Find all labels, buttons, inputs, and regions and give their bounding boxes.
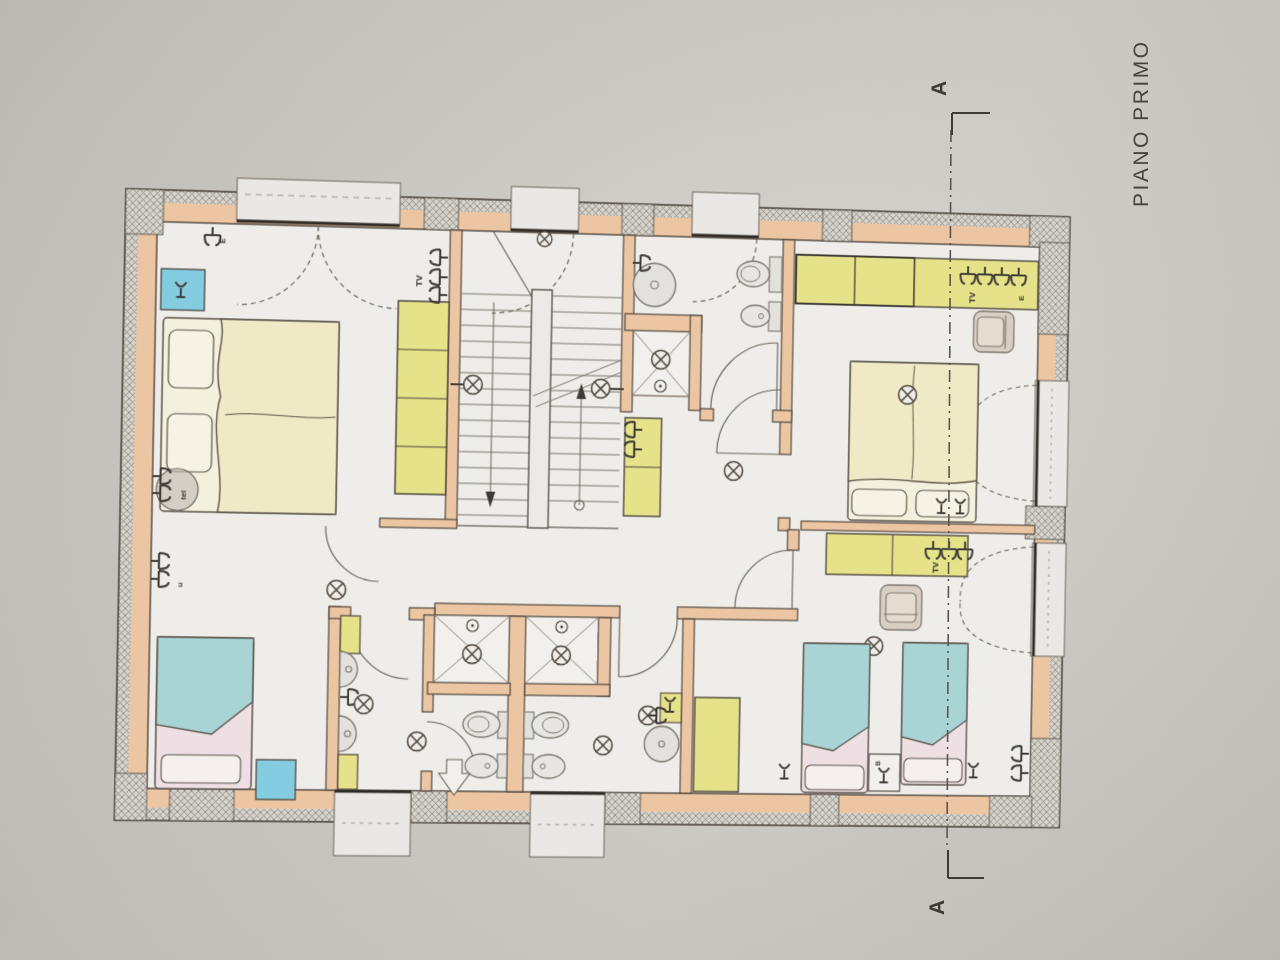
pillow bbox=[168, 330, 214, 389]
single-bed bbox=[155, 637, 254, 790]
floor-plan: TV E tel u bbox=[93, 148, 1089, 893]
wc bbox=[463, 711, 508, 738]
socket-label-tv: TV bbox=[968, 292, 978, 303]
socket-label-u: u bbox=[175, 582, 184, 587]
socket-label-e: E bbox=[218, 237, 227, 243]
socket-label-tv: TV bbox=[414, 275, 424, 287]
nightstand bbox=[161, 269, 205, 311]
pillow bbox=[167, 413, 213, 472]
socket-round bbox=[354, 695, 373, 714]
single-bed bbox=[801, 643, 870, 793]
window bbox=[333, 790, 411, 856]
bidet bbox=[523, 754, 565, 778]
wardrobe bbox=[826, 533, 968, 576]
nightstand: B bbox=[868, 754, 900, 791]
double-bed bbox=[848, 361, 979, 522]
cabinet bbox=[693, 697, 740, 791]
corridor-light bbox=[724, 461, 742, 480]
shower bbox=[433, 615, 509, 683]
single-bed bbox=[901, 643, 968, 786]
pillow bbox=[161, 755, 241, 784]
hall-cabinet bbox=[623, 418, 661, 517]
bath-cabinet bbox=[338, 754, 358, 789]
pillow bbox=[903, 758, 962, 782]
pillow bbox=[852, 489, 907, 516]
bidet bbox=[465, 754, 507, 778]
shower bbox=[632, 331, 690, 397]
socket-label-tv: TV bbox=[931, 562, 941, 573]
floor-plan-drawing: TV E tel u bbox=[93, 148, 1089, 893]
round-washbasin bbox=[644, 726, 679, 762]
stair-stringer bbox=[528, 290, 553, 529]
socket-label-b: B bbox=[875, 761, 882, 766]
armchair bbox=[880, 585, 922, 630]
wardrobe bbox=[796, 255, 1039, 310]
socket-label-tel: tel bbox=[179, 490, 188, 499]
socket-label-e: E bbox=[1017, 295, 1026, 301]
wc bbox=[524, 712, 569, 739]
armchair bbox=[973, 311, 1014, 353]
pillow bbox=[805, 765, 864, 790]
shower bbox=[525, 616, 599, 684]
wardrobe bbox=[395, 301, 449, 495]
window bbox=[529, 792, 605, 858]
bath-cabinet bbox=[340, 616, 360, 654]
nightstand bbox=[256, 760, 296, 800]
